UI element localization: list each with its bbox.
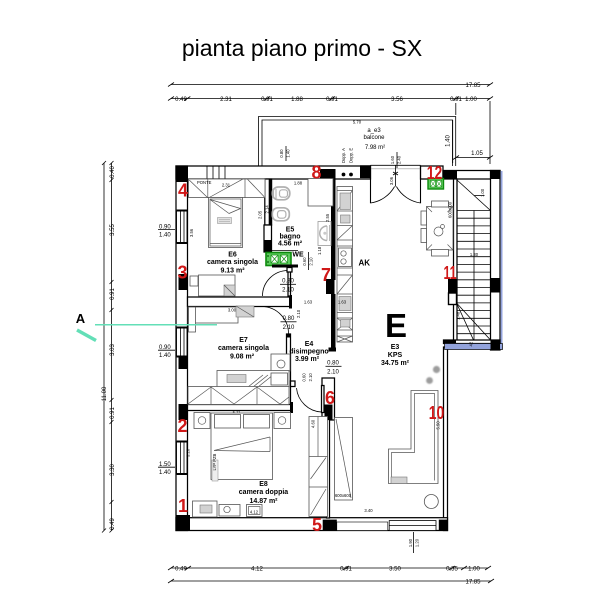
svg-text:3.50: 3.50 — [389, 567, 401, 573]
svg-text:12: 12 — [427, 163, 443, 183]
svg-text:E: E — [385, 307, 407, 344]
svg-text:PONTE: PONTE — [197, 180, 212, 185]
svg-text:A: A — [76, 311, 86, 326]
svg-text:2.10: 2.10 — [283, 325, 295, 331]
svg-text:11: 11 — [444, 263, 457, 283]
svg-text:4.12: 4.12 — [251, 567, 263, 573]
svg-text:2.10: 2.10 — [308, 257, 313, 266]
svg-text:7: 7 — [321, 265, 331, 285]
svg-text:2.55: 2.55 — [325, 213, 330, 222]
svg-text:0.91: 0.91 — [110, 407, 116, 419]
svg-text:0.91: 0.91 — [261, 97, 273, 103]
svg-text:4.12: 4.12 — [250, 510, 259, 515]
svg-text:1.40: 1.40 — [159, 353, 171, 359]
svg-text:17.85: 17.85 — [465, 83, 481, 89]
svg-text:0.91: 0.91 — [110, 288, 116, 300]
svg-text:3.00: 3.00 — [228, 308, 237, 313]
svg-text:5: 5 — [312, 515, 322, 535]
svg-text:1.20: 1.20 — [415, 538, 420, 547]
svg-text:1.00: 1.00 — [468, 567, 480, 573]
svg-text:1.48: 1.48 — [456, 311, 461, 320]
svg-text:6: 6 — [325, 388, 335, 408]
svg-text:1.88: 1.88 — [294, 181, 303, 186]
svg-text:camera singola: camera singola — [207, 259, 258, 266]
svg-text:2.14: 2.14 — [265, 205, 270, 214]
svg-text:14.87 m²: 14.87 m² — [249, 498, 278, 505]
svg-text:1.63: 1.63 — [304, 300, 313, 305]
svg-text:disimpegno: disimpegno — [289, 349, 328, 356]
svg-text:0.91: 0.91 — [326, 97, 338, 103]
svg-text:3.56: 3.56 — [391, 97, 403, 103]
svg-text:4.56 m²: 4.56 m² — [278, 241, 303, 248]
svg-text:5.70: 5.70 — [353, 120, 362, 125]
svg-text:3.56: 3.56 — [189, 228, 194, 237]
svg-text:34.75 m²: 34.75 m² — [381, 360, 410, 367]
svg-text:17.85: 17.85 — [465, 580, 481, 586]
svg-text:camera singola: camera singola — [218, 345, 269, 352]
svg-text:0.40: 0.40 — [110, 166, 116, 178]
svg-text:1.05: 1.05 — [471, 151, 483, 157]
svg-text:1.63: 1.63 — [338, 300, 347, 305]
svg-text:a_e3: a_e3 — [367, 128, 381, 134]
svg-text:3.06: 3.06 — [389, 176, 394, 185]
svg-text:0.60: 0.60 — [302, 257, 307, 266]
svg-text:3.30: 3.30 — [110, 464, 116, 476]
svg-text:3.20: 3.20 — [186, 448, 191, 457]
svg-text:0.91: 0.91 — [340, 567, 352, 573]
svg-text:0.80: 0.80 — [283, 316, 295, 322]
svg-text:1.60: 1.60 — [390, 155, 395, 164]
svg-text:8: 8 — [311, 163, 321, 183]
svg-text:600x900: 600x900 — [448, 201, 453, 218]
svg-text:11.00: 11.00 — [102, 386, 108, 401]
svg-text:2.10: 2.10 — [282, 288, 294, 294]
svg-text:7.98 m²: 7.98 m² — [365, 145, 385, 151]
svg-text:3.99 m²: 3.99 m² — [295, 356, 320, 363]
svg-text:Dopp. E: Dopp. E — [349, 148, 354, 163]
svg-text:1: 1 — [178, 496, 188, 516]
svg-text:2.10: 2.10 — [327, 370, 339, 376]
svg-text:1.18: 1.18 — [317, 246, 322, 255]
svg-text:1.90: 1.90 — [408, 538, 413, 547]
svg-text:0.80: 0.80 — [282, 279, 294, 285]
svg-text:E5: E5 — [286, 227, 295, 234]
svg-text:9.13 m²: 9.13 m² — [220, 268, 245, 275]
svg-text:10: 10 — [429, 403, 445, 423]
svg-text:0.80: 0.80 — [279, 149, 284, 158]
svg-text:1.40: 1.40 — [159, 470, 171, 476]
svg-text:Dopp. A: Dopp. A — [341, 148, 346, 163]
svg-text:42: 42 — [469, 341, 474, 346]
svg-text:E6: E6 — [228, 252, 237, 259]
svg-text:E7: E7 — [239, 337, 248, 344]
svg-text:pianta piano primo - SX: pianta piano primo - SX — [182, 35, 422, 61]
svg-text:E8: E8 — [259, 481, 268, 488]
svg-text:3.55: 3.55 — [110, 224, 116, 236]
svg-text:0.49: 0.49 — [175, 97, 187, 103]
svg-text:E4: E4 — [305, 341, 314, 348]
svg-text:AK: AK — [359, 259, 371, 268]
svg-text:4.60: 4.60 — [311, 419, 316, 428]
svg-text:LYP PZB: LYP PZB — [212, 453, 217, 470]
svg-text:KPS: KPS — [388, 352, 403, 359]
svg-text:0.60: 0.60 — [302, 373, 307, 382]
svg-text:0.80: 0.80 — [327, 361, 339, 367]
svg-text:2.05: 2.05 — [258, 210, 263, 219]
svg-text:1.00: 1.00 — [480, 188, 485, 197]
svg-text:2.10: 2.10 — [308, 373, 313, 382]
svg-text:3.03: 3.03 — [110, 344, 116, 356]
svg-text:balcone: balcone — [363, 135, 385, 141]
svg-text:camera doppia: camera doppia — [239, 489, 289, 496]
svg-text:1.40: 1.40 — [159, 232, 171, 238]
svg-text:2: 2 — [177, 416, 187, 436]
svg-text:E3: E3 — [391, 344, 400, 351]
svg-text:9.08 m²: 9.08 m² — [230, 354, 255, 361]
svg-text:bagno: bagno — [280, 234, 301, 241]
svg-text:0.35: 0.35 — [446, 567, 458, 573]
svg-text:600x600: 600x600 — [335, 493, 352, 498]
svg-text:3: 3 — [177, 263, 187, 283]
svg-text:2.31: 2.31 — [220, 97, 232, 103]
svg-text:1.40: 1.40 — [446, 135, 452, 147]
svg-text:3.40: 3.40 — [364, 508, 373, 513]
svg-text:1.30: 1.30 — [470, 252, 479, 257]
svg-text:0.49: 0.49 — [110, 518, 116, 530]
svg-text:2.31: 2.31 — [222, 183, 231, 188]
svg-text:1.88: 1.88 — [291, 97, 303, 103]
svg-text:0.91: 0.91 — [450, 97, 462, 103]
svg-text:0.49: 0.49 — [175, 567, 187, 573]
svg-text:1.00: 1.00 — [465, 97, 477, 103]
svg-text:4: 4 — [178, 181, 188, 201]
svg-text:2.10: 2.10 — [296, 309, 301, 318]
